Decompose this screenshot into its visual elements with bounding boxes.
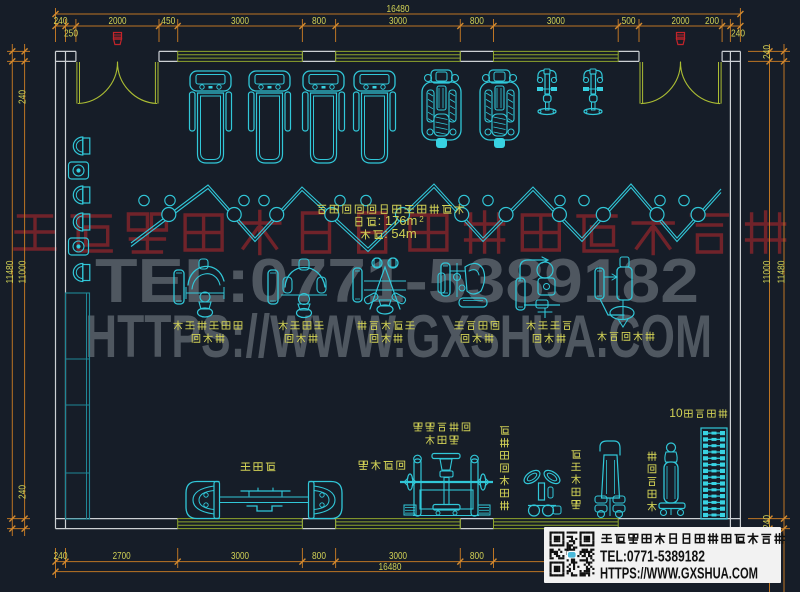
svg-text:800: 800 (312, 15, 326, 27)
svg-text:800: 800 (470, 550, 484, 562)
svg-text:240: 240 (54, 15, 68, 27)
svg-text:240: 240 (17, 90, 29, 104)
svg-text:16480: 16480 (379, 561, 402, 573)
svg-text:200: 200 (705, 15, 719, 27)
svg-text:10: 10 (669, 407, 683, 420)
svg-text:240: 240 (17, 485, 29, 499)
svg-text:16480: 16480 (387, 3, 410, 15)
svg-text:TEL:0771-5389182: TEL:0771-5389182 (600, 549, 705, 566)
svg-text:240: 240 (761, 515, 773, 529)
svg-text:2000: 2000 (672, 15, 690, 27)
svg-text:2: 2 (419, 215, 424, 224)
svg-text:3000: 3000 (231, 550, 249, 562)
svg-text:11000: 11000 (17, 260, 29, 283)
svg-text:800: 800 (312, 550, 326, 562)
svg-text:: 54m: : 54m (384, 226, 417, 241)
svg-text:HTTPS://WWW.GXSHUA.COM: HTTPS://WWW.GXSHUA.COM (600, 566, 758, 583)
svg-text:2000: 2000 (109, 15, 127, 27)
svg-text:240: 240 (761, 45, 773, 59)
svg-text:450: 450 (161, 15, 175, 27)
svg-text:11480: 11480 (776, 260, 788, 283)
svg-text:240: 240 (731, 28, 745, 40)
svg-text:11480: 11480 (4, 260, 16, 283)
svg-text:3000: 3000 (389, 15, 407, 27)
svg-text:3000: 3000 (547, 15, 565, 27)
svg-text:500: 500 (622, 15, 636, 27)
svg-text:2700: 2700 (113, 550, 131, 562)
svg-text:800: 800 (470, 15, 484, 27)
svg-text:3000: 3000 (231, 15, 249, 27)
svg-text:240: 240 (54, 550, 68, 562)
svg-text:250: 250 (64, 28, 78, 40)
svg-text:11000: 11000 (761, 260, 773, 283)
